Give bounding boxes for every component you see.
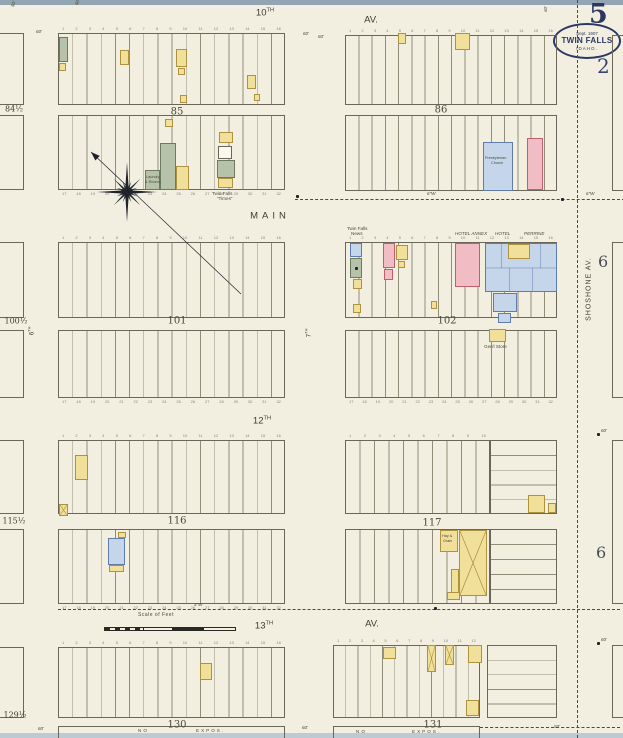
lot-number: 15 <box>534 28 538 33</box>
map-annotation: Laundry <box>146 175 160 179</box>
lumber-shed <box>459 530 487 596</box>
lot-number: 16 <box>276 235 280 240</box>
lot-number: 12 <box>214 26 218 31</box>
lot-number: 6 <box>129 235 131 240</box>
lot-number: 29 <box>234 191 238 196</box>
lot-number: 6 <box>411 28 413 33</box>
lot-number: 20 <box>105 399 109 404</box>
twin-falls-times-office <box>217 160 235 178</box>
lot-number: 6 <box>129 433 131 438</box>
scale-of-feet-label: Scale of Feet <box>108 612 204 618</box>
lot-number: 13 <box>229 433 233 438</box>
lot-numbers: 12345678910111213141516 <box>58 433 285 438</box>
outbuilding <box>431 301 437 309</box>
block-number: 117 <box>422 518 441 529</box>
map-annotation: NO <box>138 728 149 733</box>
block-117-southeast <box>490 529 557 604</box>
lot-number: 5 <box>408 433 410 438</box>
partial-block <box>0 33 24 105</box>
lot-number: 9 <box>169 235 171 240</box>
lot-number: 10 <box>183 26 187 31</box>
lot-number: 27 <box>205 399 209 404</box>
lot-number: 7 <box>143 433 145 438</box>
map-annotation: 60' <box>543 6 548 12</box>
lot-number: 5 <box>116 26 118 31</box>
presbyterian-church <box>483 142 513 191</box>
map-annotation: 50' <box>554 724 560 729</box>
lot-number: 8 <box>156 433 158 438</box>
lot-number: 7 <box>408 638 410 643</box>
scale-bar-checker <box>104 627 144 631</box>
dwelling <box>383 647 396 659</box>
lot-number: 18 <box>362 399 366 404</box>
street-name: SHOSHONE AV. <box>586 257 593 321</box>
outbuilding <box>180 95 187 103</box>
scale-bar-rule <box>144 627 236 631</box>
lot-number: 28 <box>495 399 499 404</box>
lot-number: 9 <box>448 235 450 240</box>
lot-number: 14 <box>519 28 523 33</box>
lot-number: 32 <box>548 399 552 404</box>
partial-block <box>612 35 623 191</box>
lot-number: 30 <box>248 191 252 196</box>
barn <box>445 645 454 665</box>
partial-block <box>612 440 623 604</box>
lot-numbers: 12345678910111213141516 <box>58 640 285 645</box>
outbuilding <box>218 178 233 188</box>
lot-number: 17 <box>349 399 353 404</box>
scale-bar <box>104 627 236 631</box>
lot-number: 4 <box>102 433 104 438</box>
block-number: 86 <box>435 105 448 116</box>
lot-number: 11 <box>198 640 202 645</box>
lot-number: 16 <box>548 235 552 240</box>
lot-number: 24 <box>162 399 166 404</box>
lot-number: 7 <box>424 235 426 240</box>
block-86-south <box>345 115 557 191</box>
lot-number: 22 <box>415 399 419 404</box>
map-annotation: PERRINE <box>524 231 544 236</box>
lot-number: 8 <box>156 235 158 240</box>
map-annotation: EXPOS. <box>412 729 441 734</box>
block-101-north <box>58 242 285 318</box>
lot-number: 12 <box>214 235 218 240</box>
map-annotation: 60' <box>601 637 607 642</box>
lot-number: 24 <box>162 191 166 196</box>
dwelling <box>176 166 189 190</box>
dwelling <box>108 538 125 565</box>
outbuilding <box>178 68 185 75</box>
lot-number: 3 <box>89 26 91 31</box>
map-annotation: Church <box>491 161 503 165</box>
lot-number: 4 <box>102 26 104 31</box>
lot-number: 14 <box>245 235 249 240</box>
dwelling <box>120 50 129 65</box>
map-annotation: 60' <box>36 29 42 34</box>
lot-number: 25 <box>176 399 180 404</box>
lot-number: 20 <box>105 605 109 610</box>
outbuilding <box>353 279 362 289</box>
hydrant-dot <box>597 433 600 436</box>
lot-numbers: 123456789101112 <box>333 638 480 643</box>
stable <box>59 504 68 516</box>
cross-hatch <box>460 531 486 595</box>
block-number: 101 <box>167 316 186 327</box>
lot-number: 21 <box>119 605 123 610</box>
dashed-line <box>295 199 623 200</box>
lot-number: 9 <box>467 433 469 438</box>
lot-number: 6 <box>129 640 131 645</box>
lot-number: 9 <box>169 26 171 31</box>
lot-number: 15 <box>261 433 265 438</box>
hydrant-dot <box>561 198 564 201</box>
outbuilding <box>548 503 556 513</box>
dwelling <box>200 663 212 680</box>
lot-number: 1 <box>337 638 339 643</box>
block-131 <box>333 645 480 718</box>
lot-numbers: 12345678910111213141516 <box>58 26 285 31</box>
lot-number: 3 <box>89 235 91 240</box>
lot-number: 32 <box>276 605 280 610</box>
lot-number: 31 <box>535 399 539 404</box>
lot-number: 27 <box>205 605 209 610</box>
scale-bar-fill <box>172 628 204 630</box>
lot-number: 14 <box>519 235 523 240</box>
margin-number-bottom: 6 <box>596 545 606 561</box>
lot-number: 8 <box>420 638 422 643</box>
lot-number: 11 <box>198 433 202 438</box>
lot-number: 30 <box>522 399 526 404</box>
lot-number: 7 <box>424 28 426 33</box>
lot-number: 2 <box>75 433 77 438</box>
genl-store <box>489 329 506 342</box>
hydrant-dot <box>597 642 600 645</box>
block-116-north <box>58 440 285 514</box>
lot-number: 11 <box>458 638 462 643</box>
lot-number: 8 <box>452 433 454 438</box>
block-117-northwest <box>345 440 490 514</box>
lot-number: 12 <box>214 433 218 438</box>
lot-number: 24 <box>442 399 446 404</box>
hydrant-dot <box>296 195 299 198</box>
street-name: MAIN <box>250 211 290 222</box>
lot-number: 10 <box>183 235 187 240</box>
shed <box>466 700 479 716</box>
lot-number: 20 <box>389 399 393 404</box>
block-86-north <box>345 35 557 105</box>
lot-number: 16 <box>548 28 552 33</box>
lot-number: 22 <box>133 191 137 196</box>
outbuilding <box>109 565 124 572</box>
edge-block-number: 115½ <box>2 517 25 526</box>
map-annotation: Grain <box>443 539 452 543</box>
lot-number: 16 <box>276 640 280 645</box>
hydrant-dot <box>434 607 437 610</box>
lot-number: 6 <box>129 26 131 31</box>
lot-number: 7 <box>143 235 145 240</box>
lot-number: 22 <box>133 605 137 610</box>
cross-hatch <box>428 646 435 671</box>
store-building <box>384 269 393 280</box>
map-annotation: 60' <box>601 428 607 433</box>
map-annotation: EXPOS. <box>196 728 225 733</box>
outbuilding <box>59 63 66 71</box>
lot-number: 26 <box>191 399 195 404</box>
lot-number: 30 <box>248 605 252 610</box>
block-number: 85 <box>171 107 184 118</box>
lot-number: 24 <box>162 605 166 610</box>
lot-number: 12 <box>214 640 218 645</box>
map-annotation: HOTEL <box>495 231 510 236</box>
stamp-city: TWIN FALLS <box>562 36 613 45</box>
partial-block <box>0 647 24 718</box>
shed <box>451 569 459 593</box>
store-building <box>468 645 482 663</box>
lot-number: 2 <box>361 28 363 33</box>
lot-number: 25 <box>176 605 180 610</box>
lot-number: 20 <box>105 191 109 196</box>
lot-number: 23 <box>148 399 152 404</box>
lot-number: 27 <box>482 399 486 404</box>
partial-block <box>0 440 24 514</box>
lot-number: 12 <box>490 235 494 240</box>
lot-number: 14 <box>245 26 249 31</box>
lot-number: 1 <box>62 433 64 438</box>
lot-number: 6 <box>423 433 425 438</box>
map-annotation: 6"W <box>427 191 436 196</box>
lot-numbers: 17181920212223242526272829303132 <box>345 399 557 404</box>
lot-number: 10 <box>481 433 485 438</box>
lot-number: 10 <box>444 638 448 643</box>
hotel-outbuilding <box>498 313 511 323</box>
lot-number: 19 <box>91 605 95 610</box>
lot-number: 31 <box>262 191 266 196</box>
lot-number: 11 <box>475 28 479 33</box>
lot-number: 1 <box>349 433 351 438</box>
cross-hatch <box>60 505 67 515</box>
hotel-wing <box>493 293 517 312</box>
lot-number: 15 <box>261 26 265 31</box>
lot-number: 8 <box>436 235 438 240</box>
lot-number: 4 <box>102 640 104 645</box>
block-102-south <box>345 330 557 398</box>
barn <box>427 645 436 672</box>
lot-number: 3 <box>378 433 380 438</box>
block-101-south <box>58 330 285 398</box>
lot-number: 9 <box>432 638 434 643</box>
lot-number: 12 <box>490 28 494 33</box>
scan-edge-top <box>0 0 623 5</box>
lot-number: 1 <box>62 640 64 645</box>
lot-number: 29 <box>234 399 238 404</box>
lot-number: 2 <box>75 640 77 645</box>
lot-number: 18 <box>76 191 80 196</box>
lot-numbers: 17181920212223242526272829303132 <box>58 605 285 610</box>
map-annotation: Presbyterian <box>485 156 506 160</box>
lot-number: 3 <box>374 235 376 240</box>
lot-number: 4 <box>102 235 104 240</box>
lot-number: 23 <box>148 191 152 196</box>
lot-number: 8 <box>156 26 158 31</box>
lot-number: 19 <box>91 191 95 196</box>
shed <box>447 592 460 600</box>
lot-number: 31 <box>262 399 266 404</box>
lot-number: 5 <box>384 638 386 643</box>
lot-number: 4 <box>386 28 388 33</box>
lot-number: 15 <box>261 235 265 240</box>
lot-number: 29 <box>509 399 513 404</box>
lot-number: 3 <box>89 433 91 438</box>
dwelling <box>247 75 256 89</box>
hotel-annex <box>455 243 480 287</box>
lot-number: 23 <box>148 605 152 610</box>
lot-number: 25 <box>176 191 180 196</box>
outbuilding <box>165 119 173 127</box>
lot-number: 21 <box>119 399 123 404</box>
map-annotation: “Times” <box>217 196 232 201</box>
title-stamp-oval: Sept. 1907 TWIN FALLS IDAHO. <box>553 23 621 59</box>
store-building <box>383 243 395 268</box>
hotel-courtyard <box>508 244 530 259</box>
laundry-building <box>160 143 176 190</box>
lot-number: 11 <box>198 26 202 31</box>
lot-number: 29 <box>234 605 238 610</box>
partial-block <box>612 242 623 398</box>
lot-number: 13 <box>504 28 508 33</box>
lot-number: 32 <box>276 191 280 196</box>
lot-number: 2 <box>75 235 77 240</box>
lot-number: 28 <box>219 399 223 404</box>
lot-number: 5 <box>116 433 118 438</box>
cross-hatch <box>446 646 453 664</box>
partial-block <box>0 529 24 604</box>
lot-number: 10 <box>461 28 465 33</box>
stamp-state: IDAHO. <box>576 46 598 51</box>
lot-number: 11 <box>198 235 202 240</box>
street-name: 12TH <box>253 415 271 426</box>
lot-number: 3 <box>89 640 91 645</box>
lot-number: 3 <box>361 638 363 643</box>
lot-number: 21 <box>402 399 406 404</box>
store-building <box>59 37 68 62</box>
map-annotation: 60' <box>302 725 308 730</box>
block-number: 102 <box>437 316 456 327</box>
map-annotation: 60' <box>38 726 44 731</box>
lot-number: 19 <box>376 399 380 404</box>
lot-number: 27 <box>205 191 209 196</box>
map-annotation: NO <box>356 729 367 734</box>
lot-number: 6 <box>396 638 398 643</box>
dwelling <box>176 49 187 67</box>
partial-block <box>0 330 24 398</box>
lot-number: 18 <box>76 399 80 404</box>
lot-numbers: 12345678910111213141516 <box>345 28 557 33</box>
lot-numbers: 12345678910 <box>345 433 490 438</box>
office-building <box>396 245 408 260</box>
lot-number: 17 <box>62 399 66 404</box>
lot-number: 17 <box>62 191 66 196</box>
outbuilding <box>219 132 233 143</box>
lot-number: 4 <box>393 433 395 438</box>
dashed-line <box>480 727 620 728</box>
lot-number: 5 <box>399 28 401 33</box>
map-annotation: 60' <box>303 31 309 36</box>
partial-block <box>612 645 623 718</box>
edge-block-number: 100½ <box>4 317 27 326</box>
block-130 <box>58 647 285 718</box>
map-annotation: 60' <box>318 34 324 39</box>
block-116-south <box>58 529 285 604</box>
street-name: AV. <box>364 15 378 26</box>
lot-number: 7 <box>143 640 145 645</box>
outbuilding <box>353 304 361 313</box>
dwelling <box>75 455 88 480</box>
lot-number: 9 <box>448 28 450 33</box>
block-number: 130 <box>167 720 186 731</box>
lot-numbers: 17181920212223242526272829303132 <box>58 191 285 196</box>
lot-number: 31 <box>262 605 266 610</box>
lot-number: 12 <box>471 638 475 643</box>
lot-number: 5 <box>116 235 118 240</box>
lot-number: 7 <box>143 26 145 31</box>
street-name: AV. <box>365 619 379 630</box>
lot-number: 13 <box>229 235 233 240</box>
lot-number: 7 <box>437 433 439 438</box>
lot-number: 5 <box>399 235 401 240</box>
lot-number: 13 <box>229 26 233 31</box>
map-annotation: 4"W <box>194 602 203 607</box>
street-name: 7TH <box>303 329 312 338</box>
lot-number: 26 <box>469 399 473 404</box>
lot-number: 25 <box>455 399 459 404</box>
map-annotation: 6"W <box>586 191 595 196</box>
map-annotation: & Rooms <box>145 180 161 184</box>
lot-number: 4 <box>386 235 388 240</box>
partial-block <box>0 115 24 190</box>
lot-number: 14 <box>245 640 249 645</box>
lot-number: 16 <box>276 26 280 31</box>
map-annotation: Hay & <box>442 534 452 538</box>
lot-number: 8 <box>436 28 438 33</box>
lot-number: 22 <box>133 399 137 404</box>
lot-number: 2 <box>364 433 366 438</box>
lot-number: 1 <box>349 28 351 33</box>
lot-number: 13 <box>229 640 233 645</box>
partial-block <box>0 242 24 318</box>
lot-number: 32 <box>276 399 280 404</box>
street-name: 6TH <box>26 327 35 336</box>
lot-number: 23 <box>429 399 433 404</box>
block-131-east <box>487 645 557 718</box>
lot-number: 8 <box>156 640 158 645</box>
edge-block-number: 84½ <box>5 105 23 114</box>
lot-number: 3 <box>374 28 376 33</box>
lot-number: 16 <box>276 433 280 438</box>
hall-building <box>527 138 543 190</box>
lot-number: 2 <box>349 638 351 643</box>
lot-number: 30 <box>248 399 252 404</box>
margin-number-top: 6 <box>598 254 608 270</box>
lot-number: 28 <box>219 605 223 610</box>
lot-numbers: 17181920212223242526272829303132 <box>58 399 285 404</box>
lot-number: 21 <box>119 191 123 196</box>
lot-number: 1 <box>62 26 64 31</box>
store-building <box>455 33 470 50</box>
lot-number: 1 <box>62 235 64 240</box>
block-85-north <box>58 33 285 105</box>
block-117-northeast <box>490 440 557 514</box>
map-annotation: HOTEL ANNEX <box>455 231 487 236</box>
